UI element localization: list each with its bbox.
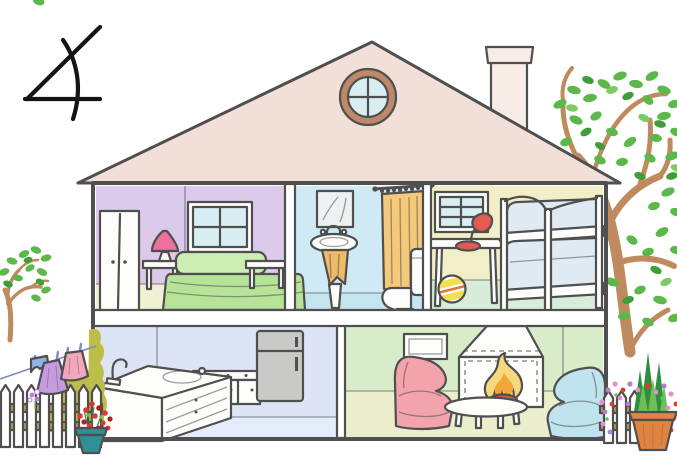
- bedroom-window: [188, 202, 252, 252]
- roof: [78, 42, 620, 183]
- tall-plants: [634, 352, 668, 412]
- refrigerator: [257, 331, 303, 401]
- house-illustration: [0, 0, 677, 455]
- mirror: [317, 191, 353, 227]
- numeral-4-glyph: [25, 27, 100, 119]
- pink-dress: [61, 351, 88, 380]
- wall-vent: [404, 334, 447, 359]
- small-tree: [0, 245, 52, 340]
- round-attic-window: [340, 69, 396, 125]
- right-garden: [599, 352, 677, 450]
- left-garden: [0, 329, 113, 453]
- wardrobe: [100, 211, 139, 311]
- terracotta-planter: [629, 412, 677, 450]
